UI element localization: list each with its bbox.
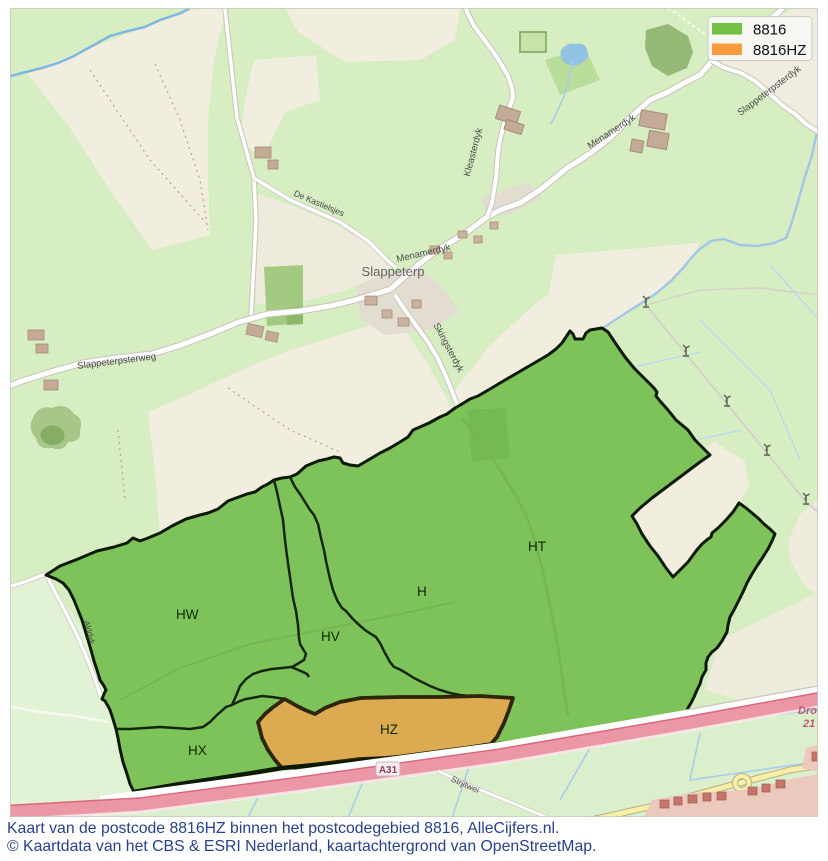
svg-text:HW: HW <box>176 607 199 622</box>
svg-text:H: H <box>417 584 427 599</box>
svg-text:HX: HX <box>188 743 207 758</box>
svg-text:HV: HV <box>321 629 340 644</box>
svg-text:21: 21 <box>802 718 815 730</box>
svg-text:HZ: HZ <box>380 722 398 737</box>
svg-text:8816: 8816 <box>753 22 786 39</box>
svg-text:8816HZ: 8816HZ <box>753 42 806 59</box>
svg-text:A31: A31 <box>379 765 398 776</box>
svg-text:Slappeterp: Slappeterp <box>362 264 425 279</box>
svg-text:HT: HT <box>528 539 546 554</box>
svg-text:Dronrij: Dronrij <box>798 705 828 717</box>
